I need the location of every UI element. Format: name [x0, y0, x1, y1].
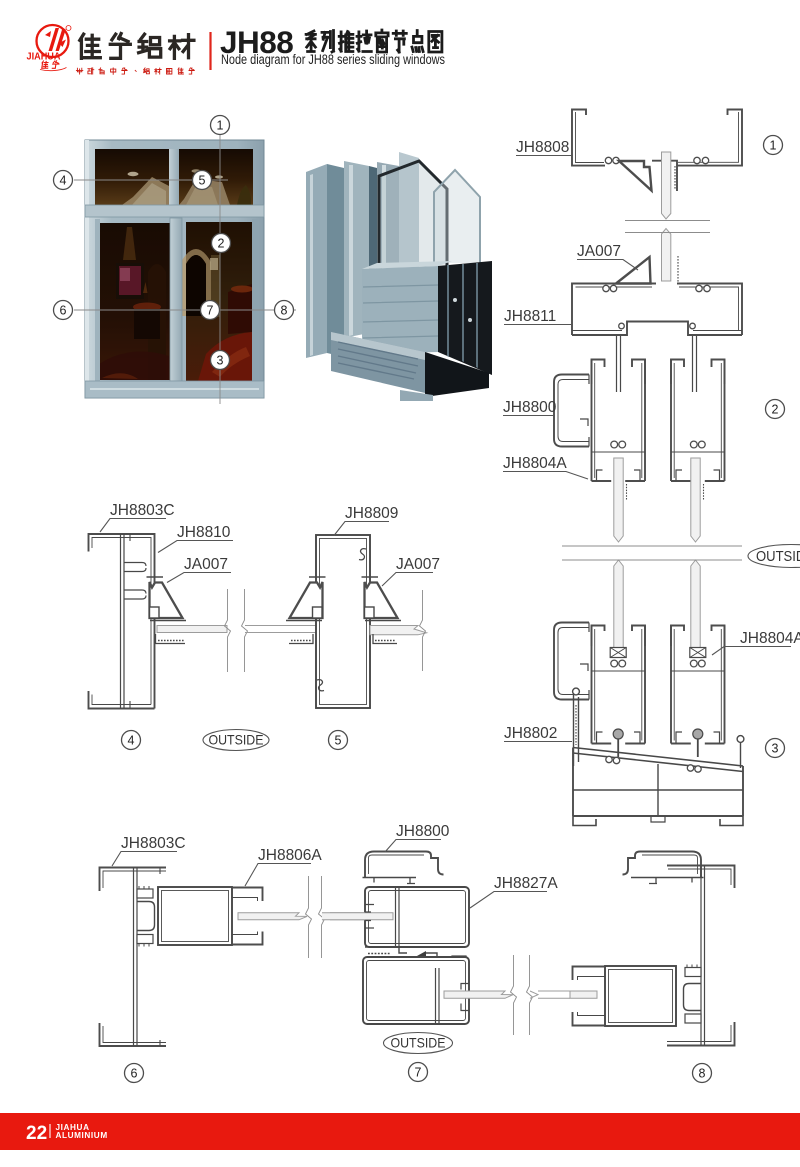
svg-text:2: 2	[218, 237, 225, 251]
svg-text:5: 5	[199, 174, 206, 188]
svg-text:JA007: JA007	[184, 556, 228, 573]
svg-text:JA007: JA007	[396, 556, 440, 573]
svg-text:JH8802: JH8802	[504, 725, 557, 742]
svg-text:4: 4	[128, 734, 135, 748]
svg-text:7: 7	[207, 304, 214, 318]
svg-text:4: 4	[60, 174, 67, 188]
svg-text:JH8800: JH8800	[503, 399, 557, 416]
svg-text:JH8803C: JH8803C	[121, 835, 186, 852]
svg-text:Node diagram for JH88 series s: Node diagram for JH88 series sliding win…	[221, 52, 445, 67]
svg-text:5: 5	[335, 734, 342, 748]
svg-text:2: 2	[772, 403, 779, 417]
svg-text:JA007: JA007	[577, 243, 621, 260]
svg-text:JH8804A: JH8804A	[740, 630, 800, 647]
svg-text:JH8804A: JH8804A	[503, 455, 567, 472]
svg-text:JH8803C: JH8803C	[110, 502, 175, 519]
svg-text:7: 7	[415, 1066, 422, 1080]
svg-text:8: 8	[699, 1067, 706, 1081]
svg-text:JH8827A: JH8827A	[494, 875, 558, 892]
svg-text:JH8806A: JH8806A	[258, 847, 322, 864]
svg-text:22: 22	[26, 1123, 47, 1144]
svg-text:ALUMINIUM: ALUMINIUM	[56, 1131, 108, 1140]
svg-text:OUTSIDE: OUTSIDE	[209, 732, 264, 748]
svg-text:6: 6	[60, 304, 67, 318]
svg-text:JH8810: JH8810	[177, 524, 231, 541]
svg-text:1: 1	[217, 119, 224, 133]
svg-text:JH8800: JH8800	[396, 823, 450, 840]
svg-text:8: 8	[281, 304, 288, 318]
svg-text:JH8811: JH8811	[504, 308, 556, 325]
svg-text:3: 3	[217, 354, 224, 368]
svg-text:6: 6	[131, 1067, 138, 1081]
svg-text:1: 1	[770, 139, 777, 153]
svg-text:JH8809: JH8809	[345, 505, 398, 522]
svg-text:3: 3	[772, 742, 779, 756]
svg-text:OUTSIDE: OUTSIDE	[391, 1035, 446, 1051]
svg-text:JH8808: JH8808	[516, 139, 569, 156]
svg-text:OUTSIDE: OUTSIDE	[756, 549, 800, 565]
